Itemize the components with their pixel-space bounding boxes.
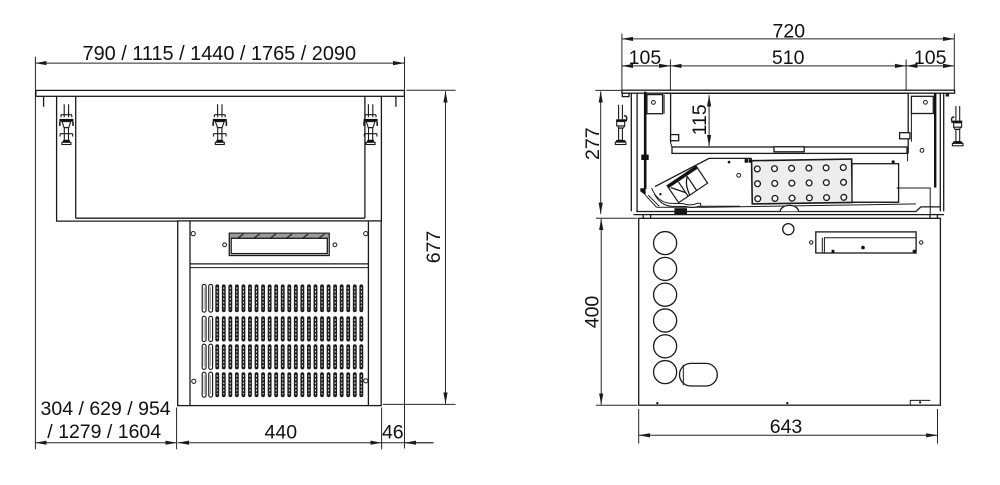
svg-text:440: 440 — [265, 421, 298, 443]
svg-text:115: 115 — [689, 104, 711, 135]
svg-text:643: 643 — [770, 416, 803, 438]
svg-text:677: 677 — [423, 231, 445, 264]
svg-text:304 / 629 / 954: 304 / 629 / 954 — [41, 398, 171, 420]
svg-text:790 / 1115 / 1440 / 1765 / 209: 790 / 1115 / 1440 / 1765 / 2090 — [83, 43, 357, 65]
svg-text:46: 46 — [382, 421, 404, 443]
svg-text:277: 277 — [582, 127, 604, 160]
svg-text:400: 400 — [582, 296, 604, 329]
svg-text:/ 1279 / 1604: / 1279 / 1604 — [47, 421, 161, 443]
